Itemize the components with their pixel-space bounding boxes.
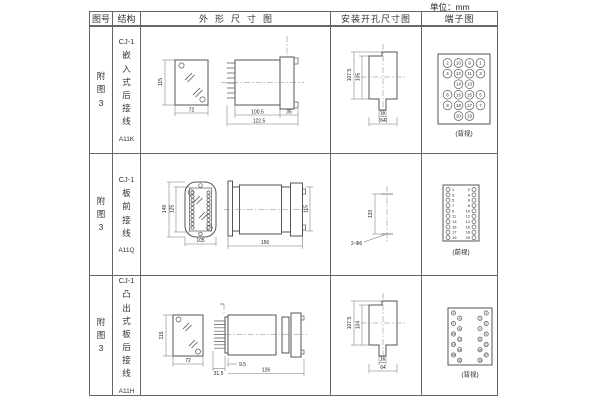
row3-code: A11H	[119, 388, 135, 395]
row1-model: CJ-1	[119, 37, 135, 46]
dim-side-height: 115	[304, 205, 310, 213]
dim-depth: 126	[262, 367, 271, 373]
dim-inner-height: 125	[170, 205, 176, 214]
row3-terminal-cell: 2468101214161820 135791113151719 (背视)	[422, 276, 497, 395]
row1-outline-cell: 115 72 100.5 35 122.5	[141, 27, 331, 154]
row2-fig-no-cell: 附图3	[90, 154, 113, 276]
header-fig-no: 图号	[90, 12, 113, 27]
svg-text:15: 15	[478, 347, 482, 351]
row3-fig-no: 附图3	[97, 316, 106, 356]
svg-text:19: 19	[452, 235, 457, 240]
svg-text:16: 16	[456, 92, 461, 97]
mounting-drawing-a11h: 107.5 104 16 64	[331, 277, 421, 395]
dim-depth: 156	[261, 240, 270, 246]
svg-text:17: 17	[484, 353, 488, 357]
svg-text:4: 4	[467, 192, 470, 197]
svg-text:12: 12	[458, 337, 462, 341]
svg-text:7: 7	[452, 203, 455, 208]
svg-text:20: 20	[456, 113, 461, 118]
svg-text:10: 10	[456, 60, 461, 65]
row2-mounting-cell: 133 2-Φ6	[331, 154, 422, 276]
dim-mount-notch: 16	[380, 111, 386, 117]
row1-mounting-cell: 107.5 105 16 (64)	[331, 27, 422, 154]
svg-text:1: 1	[452, 187, 455, 192]
terminal-diagram-a11h: 2468101214161820 135791113151719 (背视)	[423, 277, 497, 395]
svg-text:3: 3	[452, 192, 455, 197]
mounting-drawing-a11q: 133 2-Φ6	[331, 154, 421, 275]
dim-outer-height: 149	[162, 205, 168, 214]
dim-front-height: 115	[158, 78, 164, 86]
row1-fig-no-cell: 附图3	[90, 27, 113, 154]
dim-front-height: 115	[159, 331, 165, 339]
svg-text:14: 14	[456, 82, 461, 87]
outline-drawing-a11k: 115 72 100.5 35 122.5	[141, 27, 330, 153]
svg-text:16: 16	[465, 224, 470, 229]
svg-text:18: 18	[451, 353, 455, 357]
svg-text:20: 20	[465, 235, 470, 240]
row3-mounting-cell: 107.5 104 16 64	[331, 276, 422, 395]
spec-table: 图号 结构 外形尺寸图 安装开孔尺寸图 端子图 附图3 CJ-1 嵌入式后接线 …	[89, 11, 498, 396]
header-terminal: 端子图	[422, 12, 497, 27]
dim-width: 105	[196, 238, 205, 244]
terminal-caption: (背视)	[455, 129, 472, 138]
svg-text:11: 11	[467, 71, 472, 76]
terminal-caption: (背视)	[461, 369, 478, 378]
svg-text:6: 6	[467, 198, 470, 203]
dim-depth: 100.5	[251, 110, 264, 116]
row1-structure-cell: CJ-1 嵌入式后接线 A11K	[113, 27, 141, 154]
svg-text:18: 18	[456, 103, 461, 108]
svg-text:13: 13	[484, 342, 488, 346]
row2-fig-no: 附图3	[97, 195, 106, 235]
svg-text:14: 14	[451, 342, 455, 346]
svg-text:20: 20	[458, 358, 462, 362]
row1-terminal-cell: 2109141211314136161558181772019 (背视)	[422, 27, 497, 154]
svg-text:14: 14	[465, 219, 470, 224]
dim-mount-outer: 107.5	[347, 69, 353, 82]
row3-structure-cell: CJ-1 凸出式板后接线 A11H	[113, 276, 141, 395]
outline-drawing-a11h: 115 72 31.5 9.5 126	[141, 277, 330, 395]
terminal-diagram-a11q: 135791113151719 2468101214161820 (前视)	[423, 154, 497, 275]
dim-mount-bottom: (64)	[379, 118, 388, 124]
outline-drawing-a11q: 149 125 105 156 115	[141, 154, 330, 275]
dim-overall: 122.5	[253, 119, 266, 125]
svg-text:12: 12	[465, 214, 470, 219]
row2-outline-cell: 149 125 105 156 115	[141, 154, 331, 276]
dim-hole-callout: 2-Φ6	[351, 241, 362, 247]
terminal-caption: (前视)	[452, 247, 469, 256]
terminal-grid-rear: 2109141211314136161558181772019	[443, 59, 485, 121]
svg-text:11: 11	[478, 337, 481, 341]
dim-offset: 9.5	[239, 362, 246, 368]
svg-text:12: 12	[456, 71, 461, 76]
svg-text:9: 9	[452, 208, 455, 213]
row1-structure-text: 嵌入式后接线	[122, 49, 131, 128]
terminal-group-left: 2468101214161820	[451, 310, 461, 361]
svg-text:5: 5	[452, 198, 455, 203]
dim-mount-outer: 107.5	[347, 316, 353, 329]
row3-structure-text: 凸出式板后接线	[122, 288, 131, 380]
svg-text:18: 18	[465, 230, 470, 235]
dim-mount-inner: 105	[356, 73, 362, 82]
terminal-column-odd: 135791113151719	[446, 187, 457, 240]
svg-text:2: 2	[467, 187, 470, 192]
row2-code: A11Q	[118, 247, 134, 254]
svg-text:8: 8	[467, 203, 470, 208]
dim-hole-spacing: 133	[368, 210, 374, 219]
dim-flange: 35	[286, 110, 292, 116]
svg-text:17: 17	[452, 230, 457, 235]
mounting-drawing-a11k: 107.5 105 16 (64)	[331, 27, 421, 153]
dim-mount-bottom: 64	[380, 365, 386, 371]
svg-text:17: 17	[467, 103, 472, 108]
header-mounting: 安装开孔尺寸图	[331, 12, 422, 27]
svg-text:10: 10	[451, 332, 455, 336]
svg-text:16: 16	[458, 347, 462, 351]
dim-front-width: 72	[189, 108, 195, 114]
svg-text:19: 19	[478, 358, 482, 362]
terminal-column-even: 2468101214161820	[465, 187, 475, 240]
svg-text:15: 15	[467, 92, 472, 97]
svg-text:13: 13	[452, 219, 457, 224]
row2-structure-cell: CJ-1 板前接线 A11Q	[113, 154, 141, 276]
header-outline: 外形尺寸图	[141, 12, 331, 27]
row1-code: A11K	[119, 136, 134, 143]
row1-fig-no: 附图3	[97, 70, 106, 110]
page: { "unit_label": "单位：mm", "header": { "co…	[0, 0, 600, 400]
svg-text:13: 13	[467, 82, 472, 87]
dim-pin-length: 31.5	[214, 371, 224, 377]
terminal-diagram-a11k: 2109141211314136161558181772019 (背视)	[423, 27, 497, 153]
svg-text:19: 19	[467, 113, 472, 118]
row2-model: CJ-1	[119, 175, 135, 184]
row3-outline-cell: 115 72 31.5 9.5 126	[141, 276, 331, 395]
dim-mount-inner: 104	[356, 320, 362, 329]
svg-text:10: 10	[465, 208, 470, 213]
svg-text:11: 11	[452, 214, 457, 219]
dim-front-width: 72	[185, 358, 191, 364]
dim-mount-notch: 16	[380, 356, 386, 362]
header-structure: 结构	[113, 12, 141, 27]
row2-structure-text: 板前接线	[122, 187, 131, 240]
terminal-group-right: 135791113151719	[477, 310, 487, 361]
row3-model: CJ-1	[119, 276, 135, 285]
svg-text:15: 15	[452, 224, 457, 229]
row2-terminal-cell: 135791113151719 2468101214161820 (前视)	[422, 154, 497, 276]
row3-fig-no-cell: 附图3	[90, 276, 113, 395]
